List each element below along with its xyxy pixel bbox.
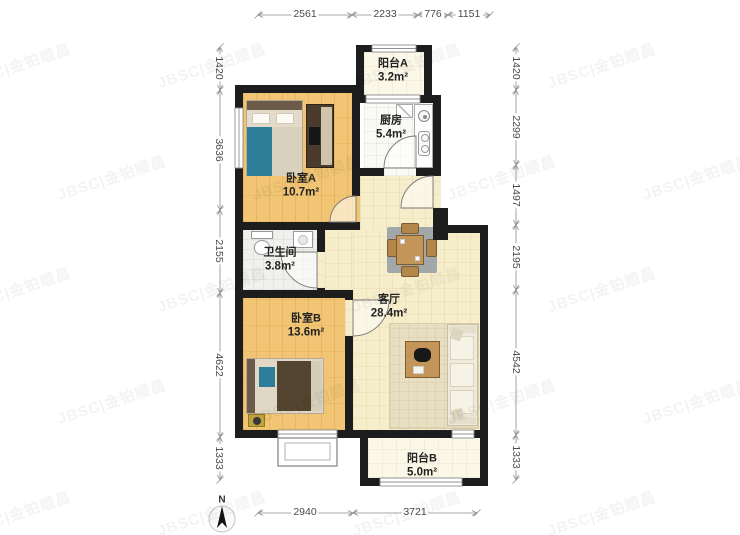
dim-label-left-2: 2155 <box>212 237 226 264</box>
dim-label-right-0: 1420 <box>509 54 523 81</box>
room-label-bathroom: 卫生间3.8m² <box>264 245 297 274</box>
dim-label-bottom-0: 2940 <box>291 506 318 518</box>
room-label-balcony-a: 阳台A3.2m² <box>378 56 408 85</box>
north-label: N <box>218 495 225 506</box>
floorplan-canvas: 卧室A10.7m² 阳台A3.2m² 厨房5.4m² 卫生间3.8m² 客厅28… <box>0 0 740 535</box>
dim-label-left-4: 1333 <box>212 444 226 471</box>
room-label-bedroom-a: 卧室A10.7m² <box>283 171 319 200</box>
dim-label-left-0: 1420 <box>212 54 226 81</box>
dim-label-top-3: 1151 <box>456 8 483 20</box>
dim-label-top-1: 2233 <box>371 8 398 20</box>
dim-label-right-5: 1333 <box>509 443 523 470</box>
dim-label-bottom-1: 3721 <box>401 506 428 518</box>
room-label-bedroom-b: 卧室B13.6m² <box>288 311 324 340</box>
labels-layer: 卧室A10.7m² 阳台A3.2m² 厨房5.4m² 卫生间3.8m² 客厅28… <box>0 0 740 535</box>
dim-label-left-1: 3636 <box>212 136 226 163</box>
dim-label-top-0: 2561 <box>291 8 318 20</box>
dim-label-right-1: 2299 <box>509 113 523 140</box>
dim-label-right-3: 2195 <box>509 243 523 270</box>
dim-label-left-3: 4622 <box>212 351 226 378</box>
dim-label-right-4: 4542 <box>509 348 523 375</box>
room-label-balcony-b: 阳台B5.0m² <box>407 451 437 480</box>
dim-label-right-2: 1497 <box>509 181 523 208</box>
room-label-kitchen: 厨房5.4m² <box>376 113 406 142</box>
room-label-living-room: 客厅28.4m² <box>371 292 407 321</box>
dim-label-top-2: 776 <box>422 8 444 20</box>
